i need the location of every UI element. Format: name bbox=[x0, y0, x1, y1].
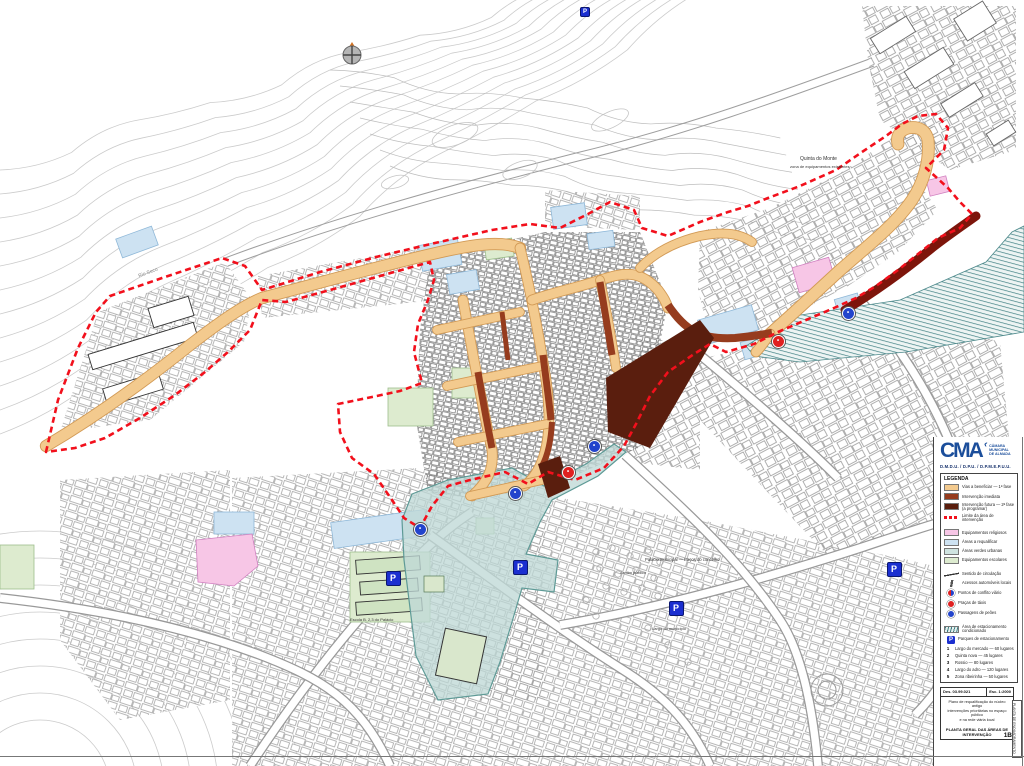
legend-numbered-item: 1Largo do mercado — 60 lugares bbox=[944, 646, 1015, 651]
plan-subtitle: PLANTA GERAL DAS ÁREAS DE INTERVENÇÃO bbox=[943, 727, 1011, 737]
side-vertical-label: PLANTA DE ENQUADRAMENTO bbox=[1012, 700, 1022, 758]
side-panel: CMA ‹ CÂMARA MUNICIPAL DE ALMADA D.M.D.U… bbox=[933, 437, 1024, 766]
lblue-swatch-icon bbox=[944, 539, 959, 546]
legend-number: 1 bbox=[944, 646, 952, 651]
legend-item: Equipamentos religiosos bbox=[944, 529, 1015, 536]
legend-item: PParques de estacionamento bbox=[944, 636, 1015, 644]
legend-item: Área de estacionamento condicionado bbox=[944, 625, 1015, 634]
sheet-frame-bottom bbox=[0, 756, 1024, 757]
logo-org-name: CÂMARA MUNICIPAL DE ALMADA bbox=[989, 444, 1010, 456]
legend-numbered-item: 5Zona ribeirinha — 50 lugares bbox=[944, 674, 1015, 679]
darkbrown-swatch-icon bbox=[944, 503, 959, 510]
legend-item-label: Área de estacionamento condicionado bbox=[962, 625, 1015, 634]
legend: LEGENDA Vias a beneficiar — 1ª faseInter… bbox=[940, 473, 1018, 683]
legend-item: Intervenção imediata bbox=[944, 493, 1015, 500]
title-block-body: Plano de requalificação do núcleo antigo… bbox=[941, 697, 1013, 739]
legend-item: Vias a beneficiar — 1ª fase bbox=[944, 484, 1015, 491]
legend-item-label: Equipamentos religiosos bbox=[962, 531, 1007, 535]
city-plan-map bbox=[0, 0, 1024, 766]
brown-swatch-icon bbox=[944, 493, 959, 500]
plan-sheet: Rio SecoQuinta do Montezona de equipamen… bbox=[0, 0, 1024, 766]
title-block-header: Des. 03.99.021 Esc. 1:2000 bbox=[941, 688, 1013, 697]
circle-rb-swatch-icon bbox=[947, 589, 955, 597]
legend-item-label: Sentido de circulação bbox=[962, 572, 1001, 576]
legend-item-label: Passagens de peões bbox=[958, 611, 996, 615]
legend-item: Acessos automóveis locais bbox=[944, 580, 1015, 587]
logo-org-line: DE ALMADA bbox=[989, 452, 1010, 456]
line-swatch-icon bbox=[944, 571, 959, 578]
lgreen-swatch-icon bbox=[944, 557, 959, 564]
legend-item: Praças de táxis bbox=[944, 600, 1015, 608]
legend-item: Sentido de circulação bbox=[944, 571, 1015, 578]
legend-item: Áreas verdes urbanas bbox=[944, 548, 1015, 555]
orange-swatch-icon bbox=[944, 484, 959, 491]
legend-title: LEGENDA bbox=[944, 476, 1015, 482]
legend-item-label: Áreas verdes urbanas bbox=[962, 549, 1002, 553]
legend-number: 2 bbox=[944, 653, 952, 658]
side-vertical-text: PLANTA DE ENQUADRAMENTO bbox=[1012, 703, 1016, 711]
legend-numbered-item: 2Quinta nova — 45 lugares bbox=[944, 653, 1015, 658]
line2-swatch-icon bbox=[944, 580, 959, 587]
legend-item: Limite da área de intervenção bbox=[944, 514, 1015, 523]
lteal-swatch-icon bbox=[944, 548, 959, 555]
legend-item: Equipamentos escolares bbox=[944, 557, 1015, 564]
pink-swatch-icon bbox=[944, 529, 959, 536]
legend-numbered-list: 1Largo do mercado — 60 lugares2Quinta no… bbox=[944, 646, 1015, 679]
legend-item-label: Parques de estacionamento bbox=[958, 637, 1009, 641]
legend-number: 3 bbox=[944, 660, 952, 665]
plan-title-line: intervenções prioritárias no espaço públ… bbox=[943, 709, 1011, 718]
legend-item-label: Praças de táxis bbox=[958, 601, 986, 605]
legend-numbered-item: 4Largo do adro — 120 lugares bbox=[944, 667, 1015, 672]
title-block: Des. 03.99.021 Esc. 1:2000 Plano de requ… bbox=[940, 687, 1014, 740]
legend-numbered-label: Largo do mercado — 60 lugares bbox=[955, 646, 1014, 651]
plan-title-line: e na rede viária local bbox=[943, 718, 1011, 723]
legend-item: Intervenção futura — 2ª fase (a programa… bbox=[944, 503, 1015, 512]
legend-item-label: Vias a beneficiar — 1ª fase bbox=[962, 485, 1011, 489]
legend-item: Áreas a requalificar bbox=[944, 539, 1015, 546]
sheet-number: 1B bbox=[1004, 732, 1012, 739]
legend-numbered-item: 3Rossio — 80 lugares bbox=[944, 660, 1015, 665]
hatch-swatch-icon bbox=[944, 626, 959, 633]
legend-item: Pontos de conflito viário bbox=[944, 589, 1015, 597]
legend-numbered-label: Zona ribeirinha — 50 lugares bbox=[955, 674, 1008, 679]
sheet-frame-right bbox=[1022, 437, 1023, 766]
p-swatch-icon: P bbox=[947, 636, 955, 644]
legend-items: Vias a beneficiar — 1ª faseIntervenção i… bbox=[944, 484, 1015, 644]
legend-item-label: Pontos de conflito viário bbox=[958, 591, 1001, 595]
legend-numbered-label: Rossio — 80 lugares bbox=[955, 660, 993, 665]
legend-item-label: Limite da área de intervenção bbox=[962, 514, 1015, 523]
legend-item-label: Intervenção futura — 2ª fase (a programa… bbox=[962, 503, 1015, 512]
legend-item-label: Equipamentos escolares bbox=[962, 558, 1007, 562]
logo-tick-icon: ‹ bbox=[982, 439, 988, 450]
legend-number: 5 bbox=[944, 674, 952, 679]
legend-numbered-label: Largo do adro — 120 lugares bbox=[955, 667, 1008, 672]
plan-title-line: Plano de requalificação do núcleo antigo bbox=[943, 700, 1011, 709]
drawing-number: Des. 03.99.021 bbox=[941, 688, 987, 696]
legend-number: 4 bbox=[944, 667, 952, 672]
redline-swatch-icon bbox=[944, 516, 959, 519]
legend-item-label: Acessos automóveis locais bbox=[962, 581, 1011, 585]
circle-red-swatch-icon bbox=[947, 600, 955, 608]
logo-acronym: CMA bbox=[940, 441, 982, 461]
legend-numbered-label: Quinta nova — 45 lugares bbox=[955, 653, 1003, 658]
scale-label: Esc. 1:2000 bbox=[987, 688, 1013, 696]
municipality-logo: CMA ‹ CÂMARA MUNICIPAL DE ALMADA bbox=[940, 441, 1021, 461]
circle-blue-swatch-icon bbox=[947, 610, 955, 618]
legend-item: Passagens de peões bbox=[944, 610, 1015, 618]
department-line: D.M.D.U. / D.P.U. / D.P.M.E.P.U.U. bbox=[940, 464, 1021, 469]
legend-item-label: Áreas a requalificar bbox=[962, 540, 997, 544]
legend-item-label: Intervenção imediata bbox=[962, 495, 1000, 499]
